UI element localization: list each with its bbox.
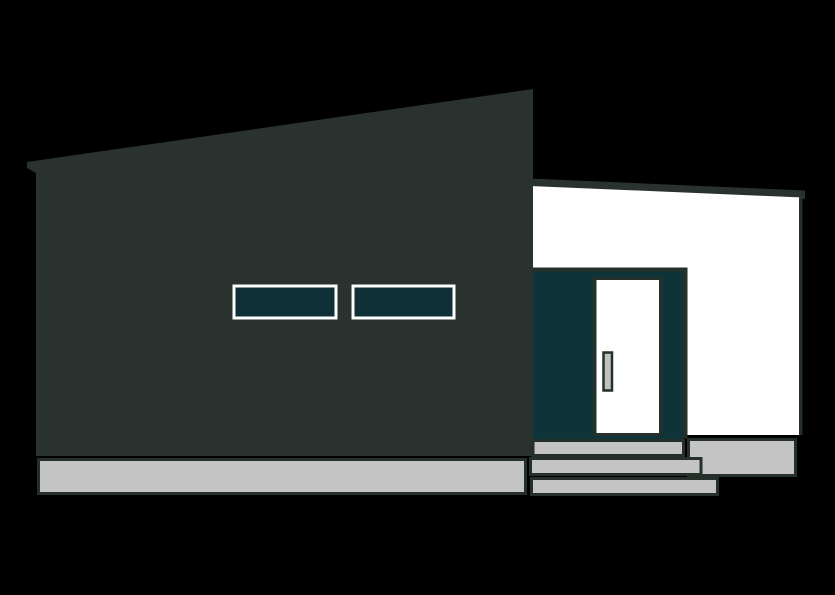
step-middle [531, 459, 702, 475]
annex-wall-right-edge [799, 198, 803, 436]
step-bottom [532, 479, 718, 495]
door-handle [604, 353, 613, 391]
base-foundation [39, 460, 526, 494]
step-top [533, 441, 684, 456]
entry-recess-top-trim [531, 268, 688, 272]
entry-recess-side-trim [683, 268, 688, 439]
window-left [234, 286, 336, 318]
house-scene [0, 0, 835, 595]
porch-landing [689, 440, 796, 476]
window-right [353, 286, 454, 318]
house-illustration [0, 0, 835, 595]
